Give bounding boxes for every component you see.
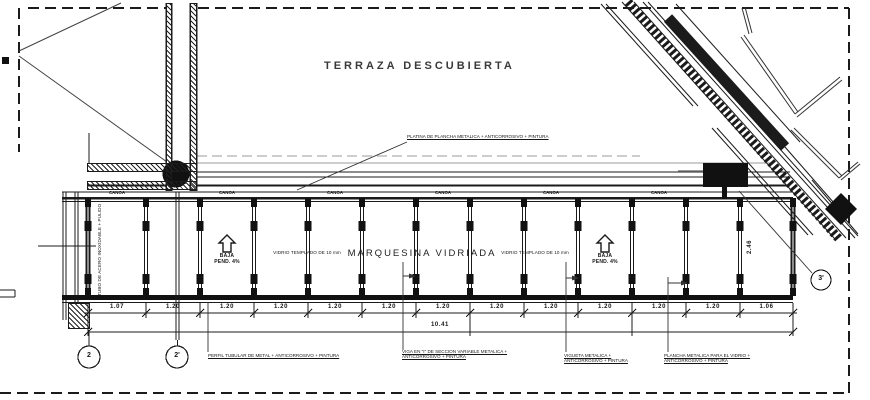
edge-fragments	[0, 57, 15, 297]
diagonal-wall	[601, 2, 858, 240]
solid-black-beam	[668, 18, 785, 147]
hatched-wall-strip	[628, 2, 840, 240]
dimension-label: 1.20	[416, 304, 470, 311]
cad-drawing-canvas: TERRAZA DESCUBIERTA PLATINA DE PLANCHA M…	[0, 0, 870, 400]
bottom-annotation-3: VIGUETA METALICA + ANTICORROSIVO + PINTU…	[564, 353, 642, 364]
slope-right-pend: PEND. 4%	[585, 260, 625, 266]
gutter-label: CANOA	[524, 190, 578, 195]
slope-left-pend: PEND. 4%	[207, 260, 247, 266]
canopy-mullions	[85, 198, 797, 296]
dimension-label: 1.20	[470, 304, 524, 311]
post-note-vertical: TUBO DE ACERO INOXIDABLE + PULIDO	[97, 200, 102, 296]
grid-bubble-2-label: 2	[78, 352, 100, 360]
gutter-label: CANOA	[200, 190, 254, 195]
slope-arrow-right-icon	[595, 234, 615, 254]
area-title: TERRAZA DESCUBIERTA	[324, 60, 515, 73]
dimension-label: 1.20	[578, 304, 632, 311]
dimension-label: 1.20	[362, 304, 416, 311]
total-dimension: 10.41	[400, 322, 480, 329]
dimension-label: 1.20	[524, 304, 578, 311]
canopy-title: MARQUESINA VIDRIADA	[342, 249, 502, 260]
glass-note-left: VIDRIO TEMPLADO DE 10 mm	[267, 250, 347, 255]
dimension-label: 1.07	[88, 304, 146, 311]
slope-arrow-left-icon	[217, 234, 237, 254]
dimension-label: 1.20	[308, 304, 362, 311]
canopy-bottom-rail	[62, 295, 793, 303]
dimension-label: 1.06	[740, 304, 793, 311]
grid-lines	[89, 192, 179, 346]
dimension-label: 1.20	[254, 304, 308, 311]
column-section-hatch	[68, 303, 90, 329]
bottom-annotation-4: PLANCHA METALICA PARA EL VIDRIO + ANTICO…	[664, 353, 774, 364]
guide-lines	[197, 156, 772, 171]
beam-hatch-top	[87, 163, 197, 172]
bottom-annotation-1: PERFIL TUBULAR DE METAL + ANTICORROSIVO …	[208, 353, 348, 358]
dimension-label: 1.20	[632, 304, 686, 311]
dimension-label: 1.20	[200, 304, 254, 311]
dimension-label: 1.20	[146, 304, 200, 311]
top-annotation: PLATINA DE PLANCHA METALICA + ANTICORROS…	[407, 134, 549, 139]
corner-brace-lines	[19, 3, 167, 162]
gutter-label: CANOA	[88, 190, 146, 195]
gutter-label: CANOA	[632, 190, 686, 195]
dimension-label: 1.20	[686, 304, 740, 311]
gutter-label: CANOA	[416, 190, 470, 195]
gutter-label: CANOA	[308, 190, 362, 195]
glass-note-right: VIDRIO TEMPLADO DE 10 mm	[495, 250, 575, 255]
bottom-annotation-2: VIGA EN "I" DE SECCION VARIABLE METALICA…	[402, 349, 520, 360]
height-dimension: 2.46	[747, 228, 754, 266]
grid-bubble-3p-label: 3'	[810, 275, 832, 283]
grid-bubble-2p-label: 2'	[166, 352, 188, 360]
